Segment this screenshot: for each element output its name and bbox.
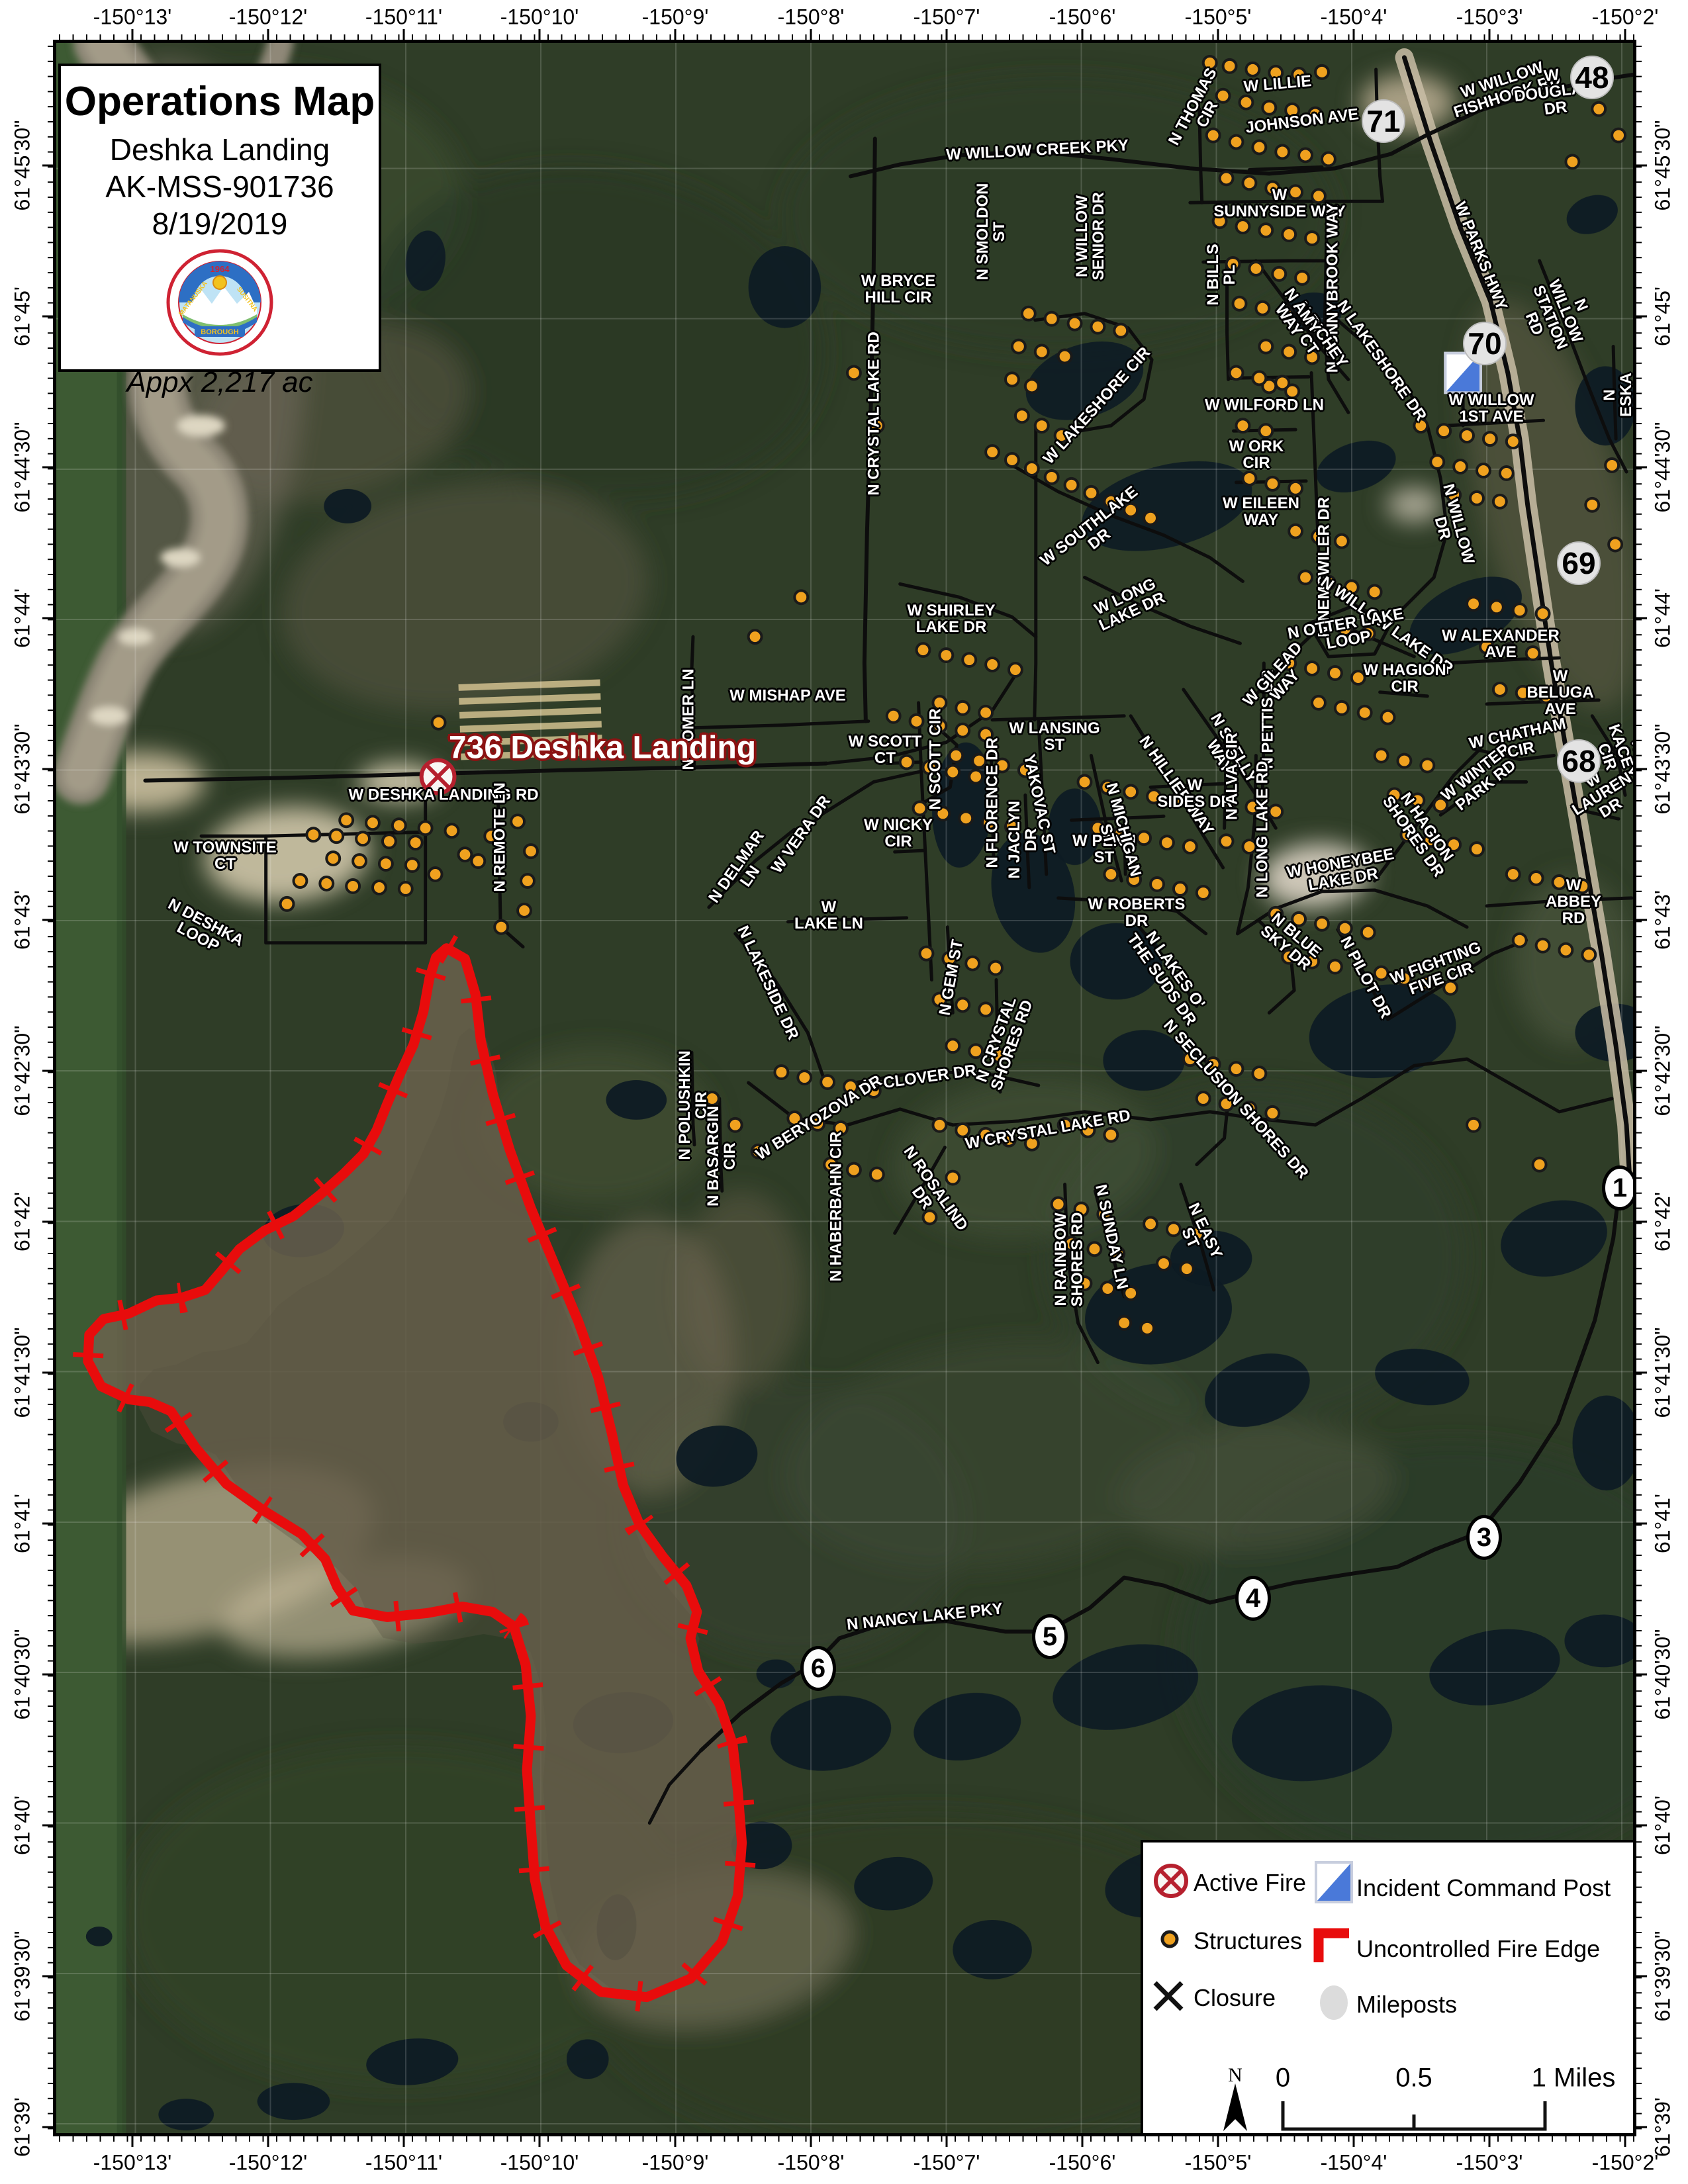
axis-label: 61°40' xyxy=(11,1796,35,1855)
legend-fire-edge-label: Uncontrolled Fire Edge xyxy=(1356,1935,1600,1963)
road-label: W HAGION CIR xyxy=(1363,662,1446,695)
road-label: W ORK CIR xyxy=(1229,438,1284,471)
title-box: Operations Map Deshka Landing AK-MSS-901… xyxy=(58,64,381,372)
milepost-4: 4 xyxy=(1235,1576,1271,1621)
axis-label: -150°10' xyxy=(500,2151,579,2175)
road-label: W DESHKA LANDING RD xyxy=(348,786,538,803)
scale-0: 0 xyxy=(1276,2064,1290,2093)
axis-label: 61°45'30" xyxy=(11,120,35,210)
axis-label: 61°42'30" xyxy=(1651,1025,1675,1116)
axis-label: 61°42' xyxy=(1651,1192,1675,1251)
road-label: N JACLYN DR xyxy=(1006,801,1039,879)
road-label: N SMOLDON ST xyxy=(974,183,1008,281)
road-label: W BRYCE HILL CIR xyxy=(861,273,935,306)
road-label: N FLORENCE DR xyxy=(984,737,1000,868)
axis-label: -150°4' xyxy=(1321,2151,1387,2175)
road-label: N LONG LAKE RD xyxy=(1254,761,1270,898)
axis-label: 61°39'30" xyxy=(1651,1931,1675,2021)
scale-bar xyxy=(1280,2099,1548,2132)
axis-label: 61°45' xyxy=(11,287,35,346)
axis-label: 61°43' xyxy=(1651,890,1675,950)
active-fire-icon xyxy=(1152,1862,1190,1899)
axis-label: -150°13' xyxy=(93,5,172,30)
axis-label: 61°43'30" xyxy=(11,723,35,814)
road-label: W NICKY CIR xyxy=(864,817,933,850)
road-label: N NEMSWILER DR xyxy=(1315,497,1332,637)
axis-label: 61°39'30" xyxy=(11,1931,35,2021)
axis-label: -150°11' xyxy=(365,5,442,30)
axis-label: -150°12' xyxy=(229,5,308,30)
svg-text:1964: 1964 xyxy=(211,264,230,274)
axis-label: 61°41'30" xyxy=(1651,1327,1675,1418)
axis-label: 61°39' xyxy=(1651,2097,1675,2157)
structures-icon xyxy=(1158,1928,1181,1950)
axis-label: -150°5' xyxy=(1185,5,1252,30)
axis-label: 61°41'30" xyxy=(11,1327,35,1418)
road-label: W EILEEN WAY xyxy=(1223,495,1299,528)
road-label: W SIDES DR xyxy=(1157,777,1232,810)
fire-edge-icon xyxy=(1313,1927,1354,1968)
road-label: N RAINBOW SHORES RD xyxy=(1053,1212,1086,1307)
axis-label: 61°41' xyxy=(11,1494,35,1553)
axis-label: 61°44' xyxy=(11,588,35,648)
legend-mileposts-label: Mileposts xyxy=(1356,1991,1457,2019)
axis-label: -150°10' xyxy=(500,5,579,30)
axis-label: -150°5' xyxy=(1185,2151,1252,2175)
axis-label: 61°40'30" xyxy=(1651,1629,1675,1719)
incident-number: AK-MSS-901736 xyxy=(61,169,379,205)
axis-label: -150°7' xyxy=(914,2151,980,2175)
axis-label: -150°8' xyxy=(778,2151,845,2175)
road-label: W SHIRLEY LAKE DR xyxy=(907,602,995,635)
axis-label: -150°6' xyxy=(1049,2151,1116,2175)
milepost-70: 70 xyxy=(1463,322,1507,365)
axis-label: -150°7' xyxy=(914,5,980,30)
legend-structures-label: Structures xyxy=(1194,1927,1302,1955)
axis-label: 61°43' xyxy=(11,890,35,950)
road-label: N CRYSTAL LAKE RD xyxy=(865,332,882,496)
axis-label: 61°44'30" xyxy=(1651,422,1675,512)
milepost-69: 69 xyxy=(1557,541,1601,585)
road-label: W BELUGA AVE xyxy=(1524,668,1597,718)
road-label: W LANSING ST xyxy=(1009,720,1100,753)
road-label: W WILLOW 1ST AVE xyxy=(1448,392,1534,425)
axis-label: 61°44'30" xyxy=(11,422,35,512)
axis-label: 61°43'30" xyxy=(1651,723,1675,814)
axis-label: -150°9' xyxy=(642,5,709,30)
milepost-1: 1 xyxy=(1602,1165,1636,1210)
legend-closure-label: Closure xyxy=(1194,1984,1276,2012)
legend-icp-label: Incident Command Post xyxy=(1356,1874,1611,1902)
road-label: W MISHAP AVE xyxy=(729,687,846,704)
road-label: N REMOTE LN xyxy=(491,782,508,891)
legend-active-fire-label: Active Fire xyxy=(1194,1869,1306,1897)
axis-label: 61°45' xyxy=(1651,287,1675,346)
milepost-68: 68 xyxy=(1557,739,1601,783)
milepost-3: 3 xyxy=(1466,1515,1502,1560)
fire-name-label: 736 Deshka Landing xyxy=(449,730,756,766)
mileposts-icon xyxy=(1317,1983,1350,2022)
axis-label: -150°2' xyxy=(1592,5,1659,30)
axis-label: 61°39' xyxy=(11,2097,35,2157)
incident-name: Deshka Landing xyxy=(61,132,379,167)
milepost-71: 71 xyxy=(1362,99,1405,143)
svg-text:BOROUGH: BOROUGH xyxy=(201,328,239,336)
road-label: N HABERBAHN CIR xyxy=(827,1132,844,1282)
axis-label: -150°3' xyxy=(1456,5,1523,30)
axis-label: -150°2' xyxy=(1592,2151,1659,2175)
axis-label: 61°42' xyxy=(11,1192,35,1251)
axis-label: 61°41' xyxy=(1651,1494,1675,1553)
road-label: W ROBERTS DR xyxy=(1088,896,1186,929)
axis-label: -150°11' xyxy=(365,2151,442,2175)
map-date: 8/19/2019 xyxy=(61,206,379,242)
axis-label: 61°44' xyxy=(1651,588,1675,648)
borough-seal: 1964 MATANUSKA SUSITNA BOROUGH xyxy=(61,248,379,357)
axis-label: 61°40'30" xyxy=(11,1629,35,1719)
operations-map-page: -150°13'-150°13'-150°12'-150°12'-150°11'… xyxy=(0,0,1688,2184)
road-label: N SCOTT CIR xyxy=(927,708,943,809)
milepost-48: 48 xyxy=(1570,56,1614,99)
north-arrow xyxy=(1219,2082,1251,2135)
axis-label: 61°42'30" xyxy=(11,1025,35,1116)
legend-box: Active Fire Structures Closure Incident … xyxy=(1141,1840,1633,2133)
road-label: N BILLS PL xyxy=(1205,244,1238,305)
scale-1mi: 1 Miles xyxy=(1532,2064,1616,2093)
milepost-5: 5 xyxy=(1032,1614,1068,1659)
axis-label: -150°13' xyxy=(93,2151,172,2175)
axis-label: -150°8' xyxy=(778,5,845,30)
axis-label: -150°6' xyxy=(1049,5,1116,30)
milepost-6: 6 xyxy=(800,1646,836,1691)
road-label: W LAKE LN xyxy=(794,899,863,932)
road-label: N WILLOW SENIOR DR xyxy=(1074,192,1107,280)
road-label: N ESKA AVE xyxy=(1601,373,1636,417)
map-title: Operations Map xyxy=(61,78,379,125)
road-label: W ABBEY RD xyxy=(1544,877,1603,927)
axis-label: -150°4' xyxy=(1321,5,1387,30)
axis-label: -150°9' xyxy=(642,2151,709,2175)
icp-icon xyxy=(1314,1860,1354,1904)
road-label: W TOWNSITE CT xyxy=(173,839,277,872)
road-label: W WILFORD LN xyxy=(1205,396,1324,413)
road-label: W SCOTT CT xyxy=(849,733,922,766)
axis-label: 61°45'30" xyxy=(1651,120,1675,210)
scale-half: 0.5 xyxy=(1395,2064,1432,2093)
acreage: Appx 2,217 ac xyxy=(61,366,379,399)
road-label: N BASARGIN CIR xyxy=(705,1106,738,1206)
road-label: W ALEXANDER AVE xyxy=(1442,627,1560,660)
axis-label: -150°12' xyxy=(229,2151,308,2175)
road-label: N ALVA CIR xyxy=(1223,733,1240,820)
axis-label: -150°3' xyxy=(1456,2151,1523,2175)
axis-label: 61°40' xyxy=(1651,1796,1675,1855)
closure-icon xyxy=(1151,1979,1186,2013)
